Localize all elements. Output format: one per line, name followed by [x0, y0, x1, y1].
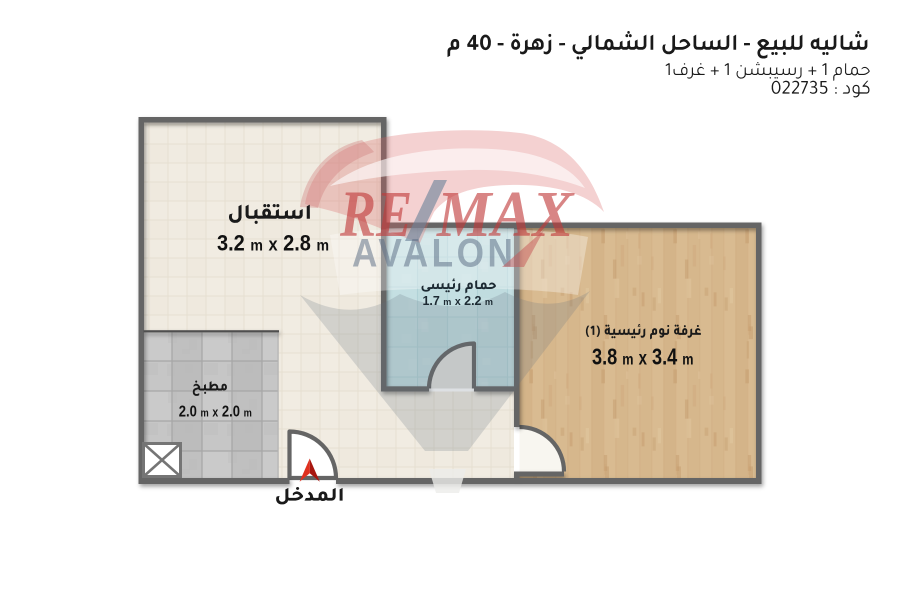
svg-text:3.2 m x 2.8 m: 3.2 m x 2.8 m: [217, 231, 329, 256]
svg-text:AVALON: AVALON: [352, 231, 516, 276]
svg-text:1.7 m x 2.2 m: 1.7 m x 2.2 m: [423, 293, 494, 308]
svg-text:2.0 m x 2.0 m: 2.0 m x 2.0 m: [179, 404, 252, 421]
